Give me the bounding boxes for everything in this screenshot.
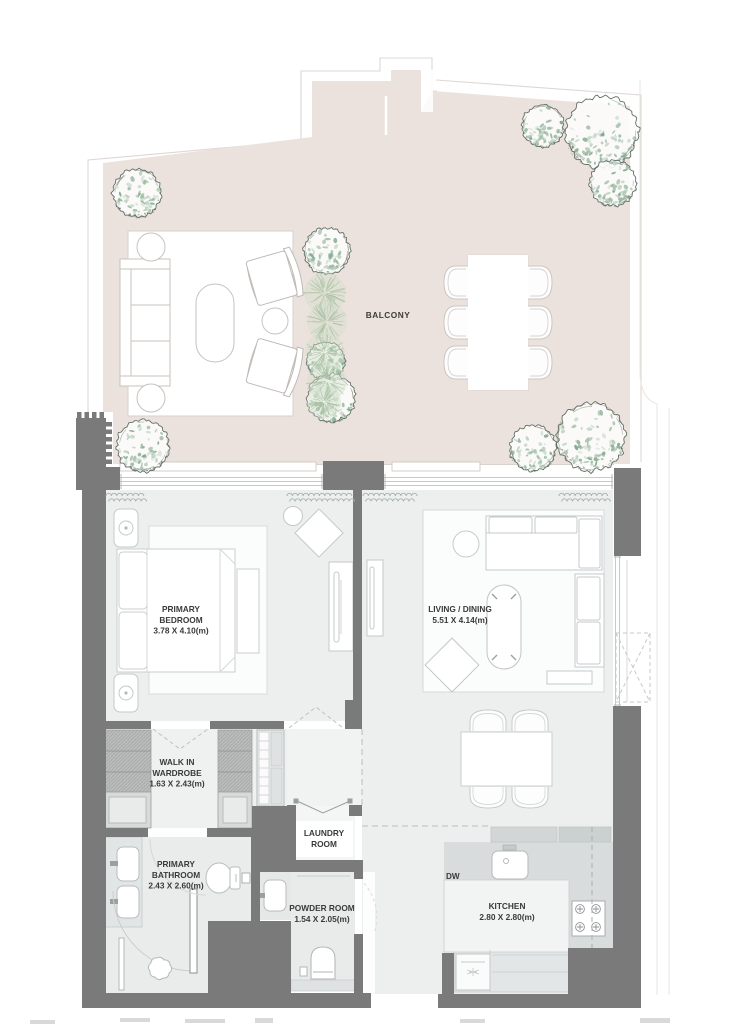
svg-text:1.54 X 2.05(m): 1.54 X 2.05(m) xyxy=(294,914,350,924)
svg-text:1.63 X 2.43(m): 1.63 X 2.43(m) xyxy=(149,779,205,789)
svg-text:LIVING / DINING: LIVING / DINING xyxy=(428,604,492,614)
svg-text:KITCHEN: KITCHEN xyxy=(489,901,526,911)
svg-text:PRIMARY: PRIMARY xyxy=(162,604,200,614)
svg-text:POWDER ROOM: POWDER ROOM xyxy=(289,903,355,913)
svg-text:BATHROOM: BATHROOM xyxy=(152,870,200,880)
svg-text:WARDROBE: WARDROBE xyxy=(152,768,202,778)
svg-text:ROOM: ROOM xyxy=(311,839,337,849)
svg-text:BEDROOM: BEDROOM xyxy=(159,615,202,625)
svg-text:LAUNDRY: LAUNDRY xyxy=(304,828,345,838)
svg-text:5.51 X 4.14(m): 5.51 X 4.14(m) xyxy=(432,615,488,625)
svg-text:WALK IN: WALK IN xyxy=(159,757,194,767)
svg-text:DW: DW xyxy=(446,872,460,881)
svg-text:2.80 X 2.80(m): 2.80 X 2.80(m) xyxy=(479,912,535,922)
svg-text:PRIMARY: PRIMARY xyxy=(157,859,195,869)
svg-text:3.78 X 4.10(m): 3.78 X 4.10(m) xyxy=(153,626,209,636)
svg-text:BALCONY: BALCONY xyxy=(366,310,411,320)
svg-text:2.43 X 2.60(m): 2.43 X 2.60(m) xyxy=(148,881,204,891)
